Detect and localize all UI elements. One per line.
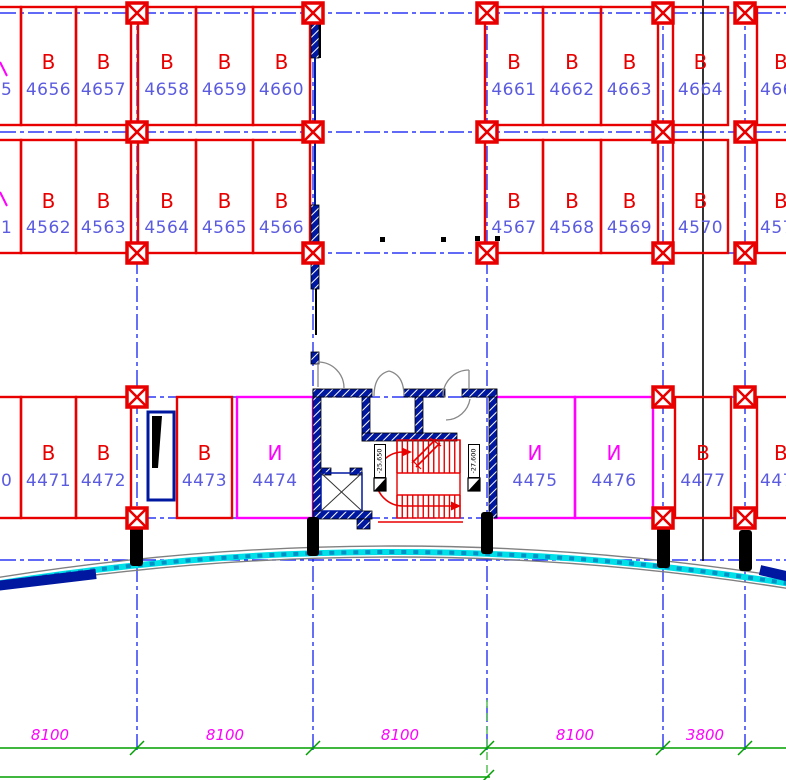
stall-letter: В: [21, 52, 76, 72]
stall-number: 4472: [76, 473, 131, 490]
stall-outline: [0, 397, 21, 518]
dimension-value: 3800: [670, 728, 740, 743]
column-marker: [735, 243, 755, 263]
elevation-mark-right: -27,600: [468, 444, 480, 478]
column-marker: [735, 387, 755, 407]
dimension-lines: [0, 741, 786, 780]
stall-letter: И: [237, 443, 313, 463]
stall-number: 4569: [601, 220, 658, 237]
column-marker: [477, 3, 497, 23]
stall-letter: В: [177, 443, 232, 463]
column-marker: [303, 3, 323, 23]
stall-number: 4563: [76, 220, 131, 237]
column-marker: [735, 508, 755, 528]
stall-number: 4656: [21, 82, 76, 99]
floor-plan-canvas: 5В4656В4657В4658В4659В4660В4661В4662В466…: [0, 0, 786, 780]
stall-number: 4476: [575, 473, 653, 490]
stall-number: 4568: [543, 220, 601, 237]
stall-number: 457: [760, 220, 786, 237]
column-marker: [477, 243, 497, 263]
stall-letter: В: [76, 443, 131, 463]
column-marker: [653, 3, 673, 23]
exterior-wall-upper: [311, 8, 320, 364]
stall-number: 466: [760, 82, 786, 99]
column-marker: [653, 508, 673, 528]
stall-number: 4564: [138, 220, 196, 237]
stall-number: 4664: [673, 82, 728, 99]
stall-letter: В: [253, 191, 310, 211]
dimension-value: 8100: [365, 728, 435, 743]
drawing-layer: [0, 0, 786, 780]
stair-direction-arrows: [402, 448, 461, 511]
stall-number: 4474: [237, 473, 313, 490]
stall-number: 1: [1, 220, 19, 237]
dimension-value: 8100: [540, 728, 610, 743]
column-marker: [127, 508, 147, 528]
stall-number: 4660: [253, 82, 310, 99]
column-marker: [653, 122, 673, 142]
stall-number: 4473: [177, 473, 232, 490]
wall-element: [148, 412, 174, 500]
stall-number: 4477: [675, 473, 731, 490]
dimension-value: 8100: [15, 728, 85, 743]
stall-number: 5: [1, 82, 19, 99]
stall-number: 4663: [601, 82, 658, 99]
stall-letter: В: [774, 52, 786, 72]
stall-letter: В: [76, 52, 131, 72]
elevation-mark-left: -25,650: [374, 444, 386, 478]
elevation-value: -25,650: [376, 448, 384, 473]
stall-letter: В: [196, 52, 253, 72]
stall-letter: В: [76, 191, 131, 211]
stall-number: 4662: [543, 82, 601, 99]
stall-number: 4566: [253, 220, 310, 237]
stall-number: 4471: [21, 473, 76, 490]
column-marker: [653, 243, 673, 263]
stall-letter: В: [601, 191, 658, 211]
handle-squares: [380, 236, 500, 242]
column-marker: [303, 122, 323, 142]
stall-letter: В: [601, 52, 658, 72]
stall-letter: И: [575, 443, 653, 463]
stall-letter: И: [495, 443, 575, 463]
stall-letter: В: [485, 191, 543, 211]
stall-number: 4565: [196, 220, 253, 237]
stall-letter: В: [543, 191, 601, 211]
column-marker: [127, 122, 147, 142]
elevator-shaft: [321, 473, 362, 511]
elevation-symbols: [374, 478, 480, 491]
column-marker: [127, 387, 147, 407]
stall-number: 4659: [196, 82, 253, 99]
stall-number: 4657: [76, 82, 131, 99]
column-marker: [653, 387, 673, 407]
column-marker: [477, 122, 497, 142]
stall-number: 0: [1, 473, 19, 490]
column-marker: [735, 3, 755, 23]
column-marker: [735, 122, 755, 142]
stall-letter: В: [675, 443, 731, 463]
stall-number: 447: [760, 473, 786, 490]
column-marker: [127, 3, 147, 23]
stall-letter: В: [673, 191, 728, 211]
stall-outline: [0, 7, 21, 125]
column-marker: [127, 243, 147, 263]
column-marker: [303, 243, 323, 263]
stall-letter: В: [21, 443, 76, 463]
stall-number: 4661: [485, 82, 543, 99]
stall-letter: В: [774, 191, 786, 211]
stall-letter: В: [21, 191, 76, 211]
stall-letter: В: [253, 52, 310, 72]
stall-letter: В: [485, 52, 543, 72]
stall-number: 4658: [138, 82, 196, 99]
stall-number: 4562: [21, 220, 76, 237]
stall-letter: В: [543, 52, 601, 72]
stall-letter: В: [673, 52, 728, 72]
stall-number: 4567: [485, 220, 543, 237]
stall-letter: В: [138, 191, 196, 211]
stair-flight: [376, 438, 463, 522]
elevation-value: -27,600: [470, 448, 478, 473]
stall-letter: В: [196, 191, 253, 211]
stall-number: 4570: [673, 220, 728, 237]
stall-letter: В: [138, 52, 196, 72]
stall-letter: В: [774, 443, 786, 463]
stall-number: 4475: [495, 473, 575, 490]
dimension-value: 8100: [190, 728, 260, 743]
